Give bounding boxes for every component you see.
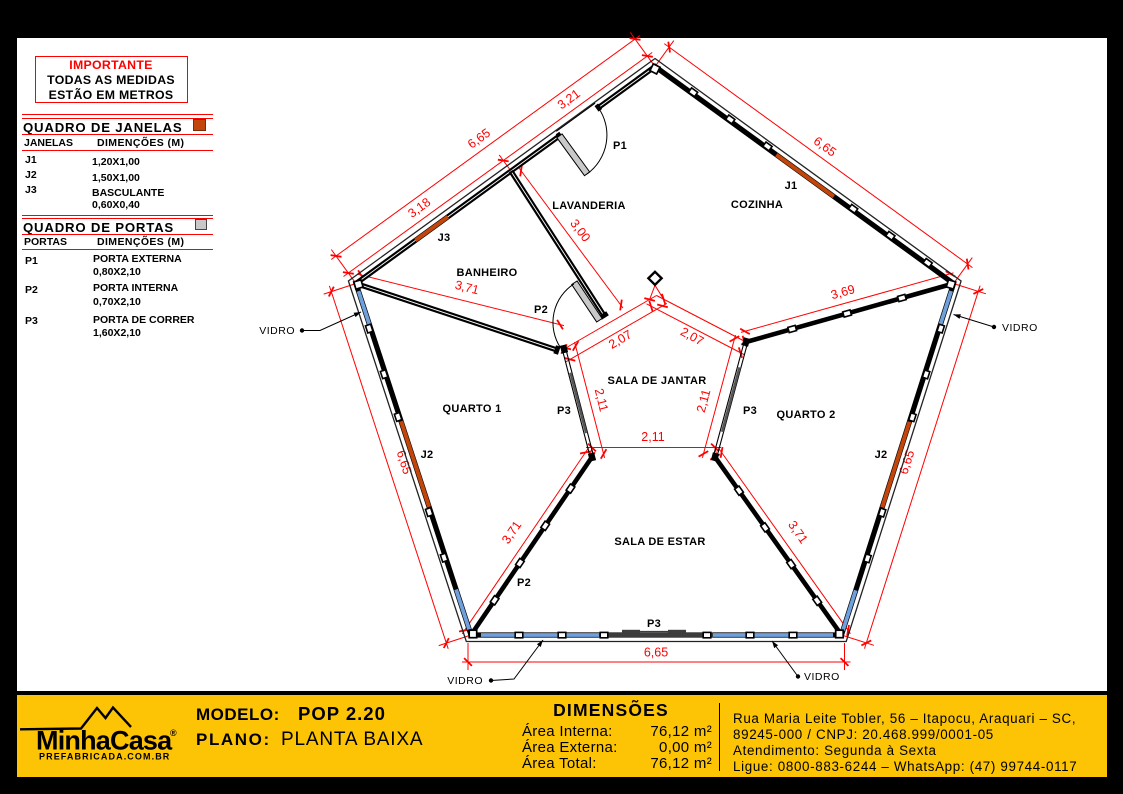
svg-text:3,69: 3,69 (829, 282, 856, 302)
svg-text:J2: J2 (421, 449, 434, 461)
svg-text:2,07: 2,07 (678, 325, 706, 349)
svg-text:3,71: 3,71 (453, 278, 480, 297)
svg-text:J1: J1 (785, 180, 798, 192)
svg-text:2,11: 2,11 (641, 430, 664, 444)
svg-text:2,11: 2,11 (694, 388, 714, 414)
svg-text:VIDRO: VIDRO (804, 671, 840, 683)
svg-text:3,18: 3,18 (405, 195, 433, 221)
svg-text:SALA DE ESTAR: SALA DE ESTAR (614, 536, 705, 548)
svg-text:2,07: 2,07 (606, 327, 634, 351)
svg-text:SALA DE JANTAR: SALA DE JANTAR (608, 375, 707, 387)
svg-text:2,11: 2,11 (592, 387, 611, 413)
svg-text:QUARTO 1: QUARTO 1 (442, 403, 501, 415)
svg-text:6,65: 6,65 (644, 646, 668, 660)
svg-text:P2: P2 (534, 304, 548, 316)
svg-text:6,65: 6,65 (811, 134, 839, 160)
svg-text:J3: J3 (438, 232, 451, 244)
svg-text:3,21: 3,21 (555, 87, 583, 113)
svg-text:VIDRO: VIDRO (447, 675, 483, 687)
svg-text:P1: P1 (613, 140, 627, 152)
svg-text:P3: P3 (743, 405, 757, 417)
svg-text:P3: P3 (557, 405, 571, 417)
svg-text:J2: J2 (875, 449, 888, 461)
svg-text:QUARTO 2: QUARTO 2 (776, 409, 835, 421)
svg-text:6,65: 6,65 (465, 126, 493, 152)
svg-text:VIDRO: VIDRO (1002, 322, 1038, 334)
svg-text:P3: P3 (647, 618, 661, 630)
svg-text:3,00: 3,00 (567, 217, 593, 245)
svg-text:LAVANDERIA: LAVANDERIA (552, 200, 625, 212)
svg-text:P2: P2 (517, 577, 531, 589)
svg-text:BANHEIRO: BANHEIRO (456, 267, 517, 279)
svg-text:3,71: 3,71 (499, 518, 524, 546)
svg-text:3,71: 3,71 (785, 518, 810, 546)
svg-text:COZINHA: COZINHA (731, 199, 783, 211)
svg-text:VIDRO: VIDRO (259, 325, 295, 337)
